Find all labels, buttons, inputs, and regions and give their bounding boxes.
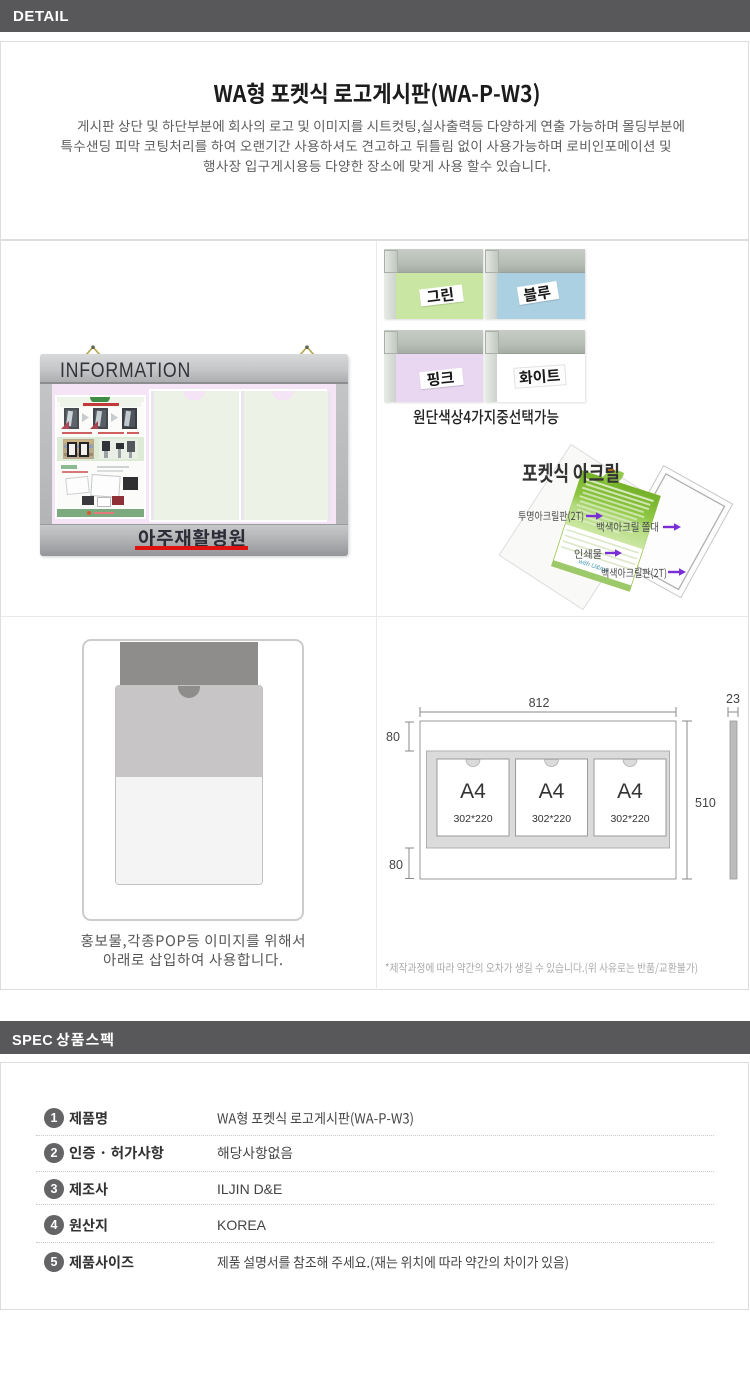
svg-text:510: 510 [695,796,716,810]
svg-text:23: 23 [726,692,740,706]
svg-text:812: 812 [529,696,550,710]
svg-text:302*220: 302*220 [453,813,492,825]
svg-text:A4: A4 [539,780,565,803]
svg-text:A4: A4 [617,780,643,803]
svg-text:302*220: 302*220 [610,813,649,825]
svg-text:302*220: 302*220 [532,813,571,825]
svg-text:80: 80 [386,730,400,744]
svg-text:A4: A4 [460,780,486,803]
svg-text:80: 80 [389,858,403,872]
